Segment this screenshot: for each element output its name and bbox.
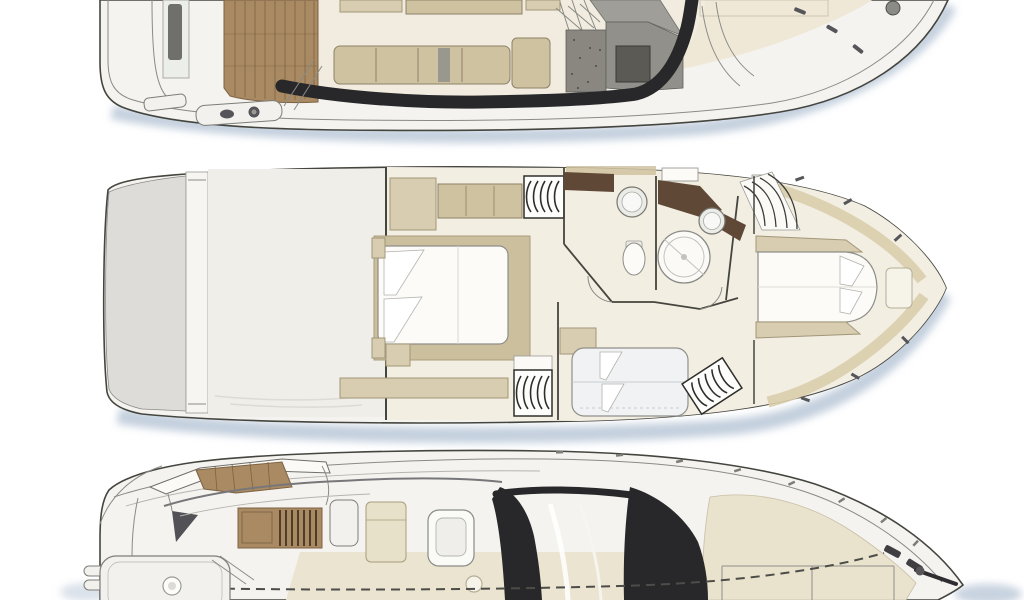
main-deck-plan	[100, 0, 950, 136]
aft-garage-panel	[106, 176, 186, 411]
lower-deck-plan	[104, 166, 946, 435]
yacht-deck-plans-illustration	[0, 0, 1024, 600]
lower-spiral-stairs-icon	[514, 356, 552, 416]
spiral-stairs-icon	[524, 176, 564, 218]
windlass-icon	[886, 1, 900, 15]
deck-plans-canvas	[0, 0, 1024, 600]
salon-sofa	[334, 38, 550, 88]
swim-platform	[84, 556, 254, 600]
flybridge-teak-stairs	[238, 508, 322, 548]
chaise-lounge	[366, 502, 406, 562]
deck-hatch	[662, 168, 698, 181]
toilet-icon	[623, 241, 645, 275]
sink-icon	[699, 208, 725, 234]
flybridge-plan	[60, 450, 1022, 600]
master-dresser	[340, 378, 508, 398]
sink-icon	[617, 187, 647, 217]
shower-icon	[658, 231, 710, 283]
sun-pad	[330, 500, 358, 546]
helm-seat	[428, 510, 474, 566]
